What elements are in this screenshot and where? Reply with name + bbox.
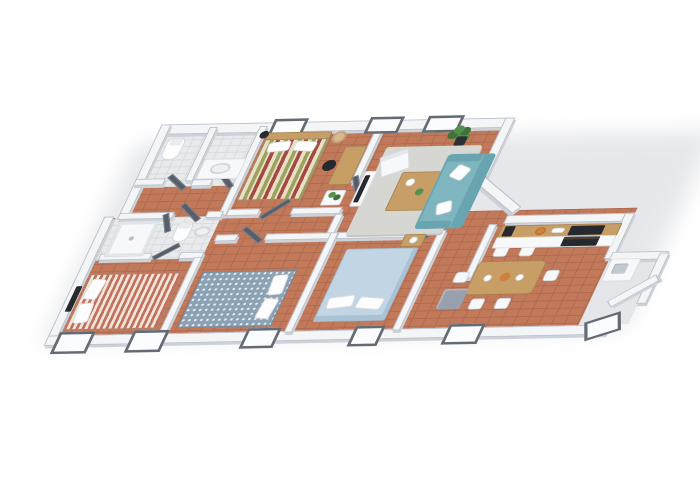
apartment-plan [52, 116, 700, 358]
sofa-arm-bottom [415, 221, 453, 229]
kitchen-drawers [560, 236, 600, 246]
wall-bedroom4-north-b [264, 232, 333, 240]
wall-bedroom4-north-a [214, 234, 239, 241]
sofa-arm-top [446, 154, 484, 162]
wall-bathroom1-south-b [190, 179, 213, 186]
wall-corridor-south-b [205, 211, 224, 218]
wall-bedroom1-south-a [226, 209, 261, 216]
floor-plan-scene [0, 0, 700, 500]
wall-bathroom1-south-a [133, 178, 166, 185]
cooktop [567, 225, 605, 235]
